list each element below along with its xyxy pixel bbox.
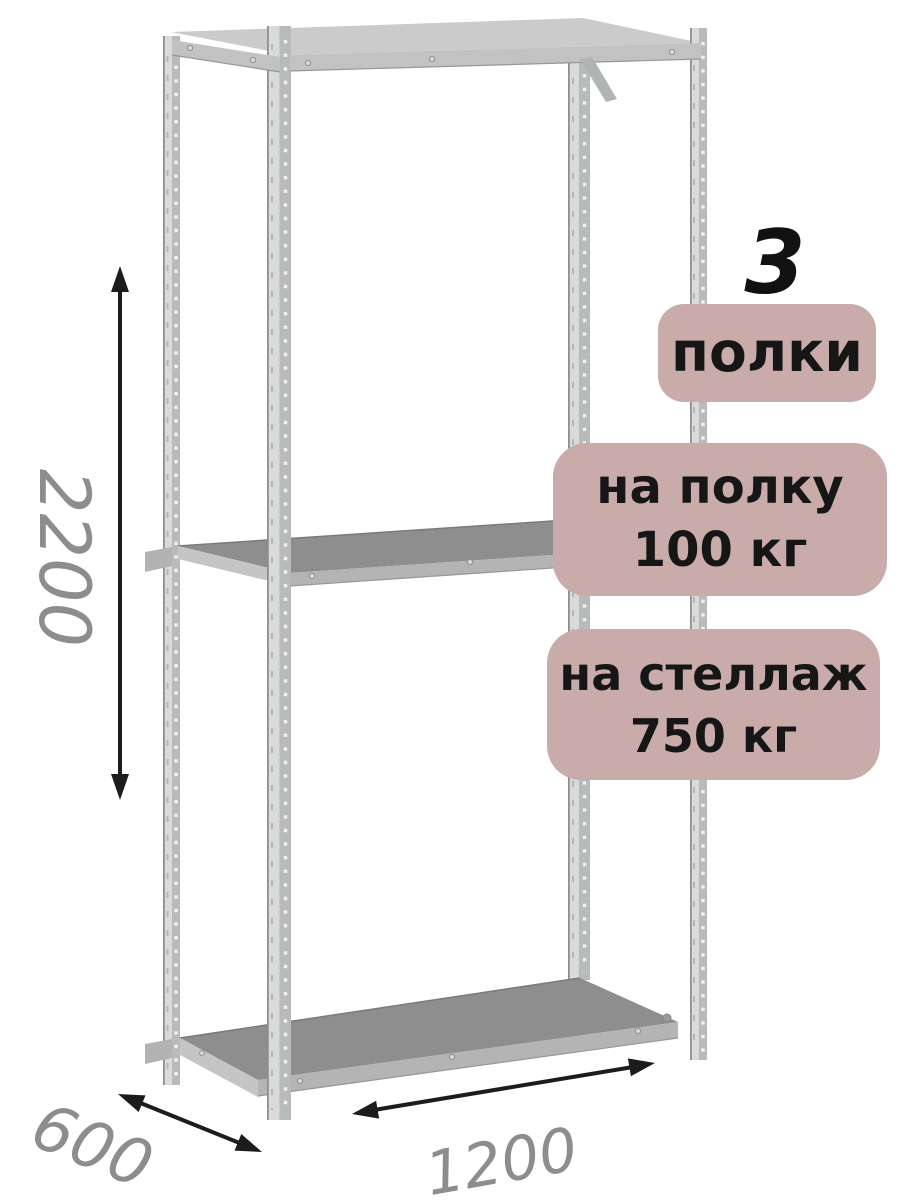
rivet (669, 49, 674, 54)
rivet (187, 45, 192, 50)
corner-bolt (663, 1014, 671, 1022)
rivet (200, 1051, 205, 1056)
load-per-shelf-badge: на полку 100 кг (553, 443, 887, 596)
load-per-rack-line2: 750 кг (547, 705, 880, 767)
post-front-left (267, 26, 291, 1120)
arrow-downright-icon (235, 1134, 263, 1152)
arrow-upleft-icon (118, 1094, 146, 1112)
arrow-up-icon (111, 266, 129, 292)
load-per-rack-badge: на стеллаж 750 кг (547, 629, 880, 780)
height-label: 2200 (23, 469, 105, 647)
bottom-shelf (145, 978, 678, 1097)
load-per-rack-line1: на стеллаж (547, 643, 880, 705)
arrow-left-icon (352, 1101, 379, 1119)
rivet (305, 60, 310, 65)
arrow-right-icon (628, 1058, 655, 1076)
rivet (635, 1028, 640, 1033)
width-dimension: 1200 (352, 1058, 655, 1200)
rivet (250, 57, 255, 62)
arrow-down-icon (111, 774, 129, 800)
rivet (467, 559, 472, 564)
post-face (172, 36, 180, 1085)
height-dimension: 2200 (23, 266, 129, 800)
rack-illustration: 2200 600 1200 (0, 0, 900, 1200)
rivet (297, 1078, 302, 1083)
load-per-shelf-line2: 100 кг (553, 519, 887, 582)
rivet (429, 56, 434, 61)
shelf-count-badge: полки (658, 304, 876, 402)
shelf-count-number: 3 (731, 220, 819, 310)
shelf-count-label: полки (671, 320, 863, 384)
depth-dimension: 600 (21, 1089, 262, 1200)
post-edge (267, 26, 269, 1120)
product-image: 2200 600 1200 3 полки на полку 100 кг на… (0, 0, 900, 1200)
post-face (267, 26, 280, 1120)
load-per-shelf-line1: на полку (553, 456, 887, 519)
width-label: 1200 (420, 1115, 583, 1200)
rivet (309, 573, 314, 578)
rivet (449, 1054, 454, 1059)
depth-label: 600 (21, 1089, 162, 1200)
